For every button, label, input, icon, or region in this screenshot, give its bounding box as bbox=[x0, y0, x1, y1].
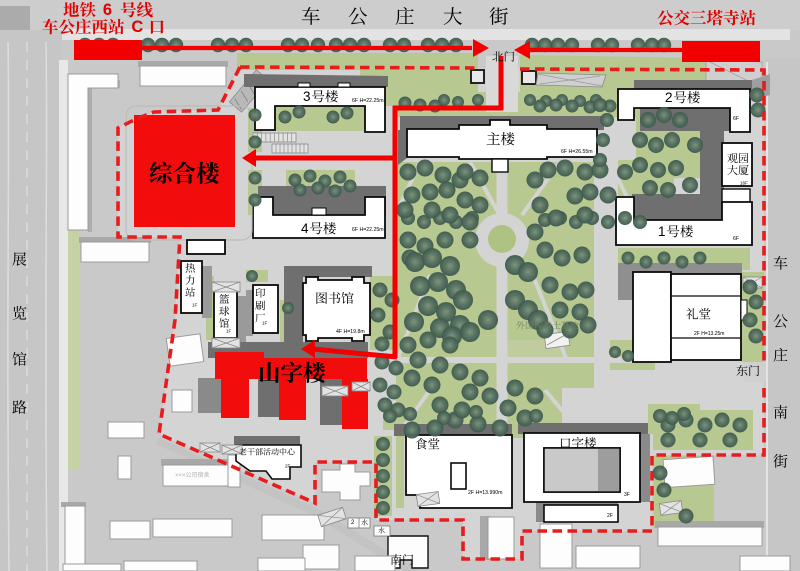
svg-text:1F: 1F bbox=[192, 303, 198, 308]
svg-text:6: 6 bbox=[103, 1, 112, 19]
svg-text:3: 3 bbox=[303, 89, 311, 104]
svg-text:4: 4 bbox=[301, 221, 309, 236]
svg-text:6F H=22.25m: 6F H=22.25m bbox=[352, 227, 384, 233]
svg-text:1: 1 bbox=[658, 224, 666, 239]
svg-text:6F: 6F bbox=[733, 236, 739, 242]
svg-text:6F H=26.55m: 6F H=26.55m bbox=[561, 149, 593, 155]
svg-text:6F H=22.25m: 6F H=22.25m bbox=[352, 98, 384, 104]
svg-text:2: 2 bbox=[665, 90, 673, 105]
svg-text:4F H=19.8m: 4F H=19.8m bbox=[336, 329, 365, 335]
svg-text:2F H=13.990m: 2F H=13.990m bbox=[468, 490, 502, 496]
svg-text:2F H=13.25m: 2F H=13.25m bbox=[694, 331, 724, 337]
svg-text:2F: 2F bbox=[607, 513, 613, 519]
svg-text:6F: 6F bbox=[733, 116, 739, 122]
svg-text:16F: 16F bbox=[740, 181, 748, 186]
svg-text:1F: 1F bbox=[226, 329, 232, 334]
svg-text:2F: 2F bbox=[285, 464, 291, 469]
svg-text:C: C bbox=[131, 18, 143, 36]
svg-text:1F: 1F bbox=[262, 321, 268, 326]
svg-text:3F: 3F bbox=[624, 492, 630, 498]
svg-text:×××公司宿舍: ×××公司宿舍 bbox=[175, 471, 210, 479]
